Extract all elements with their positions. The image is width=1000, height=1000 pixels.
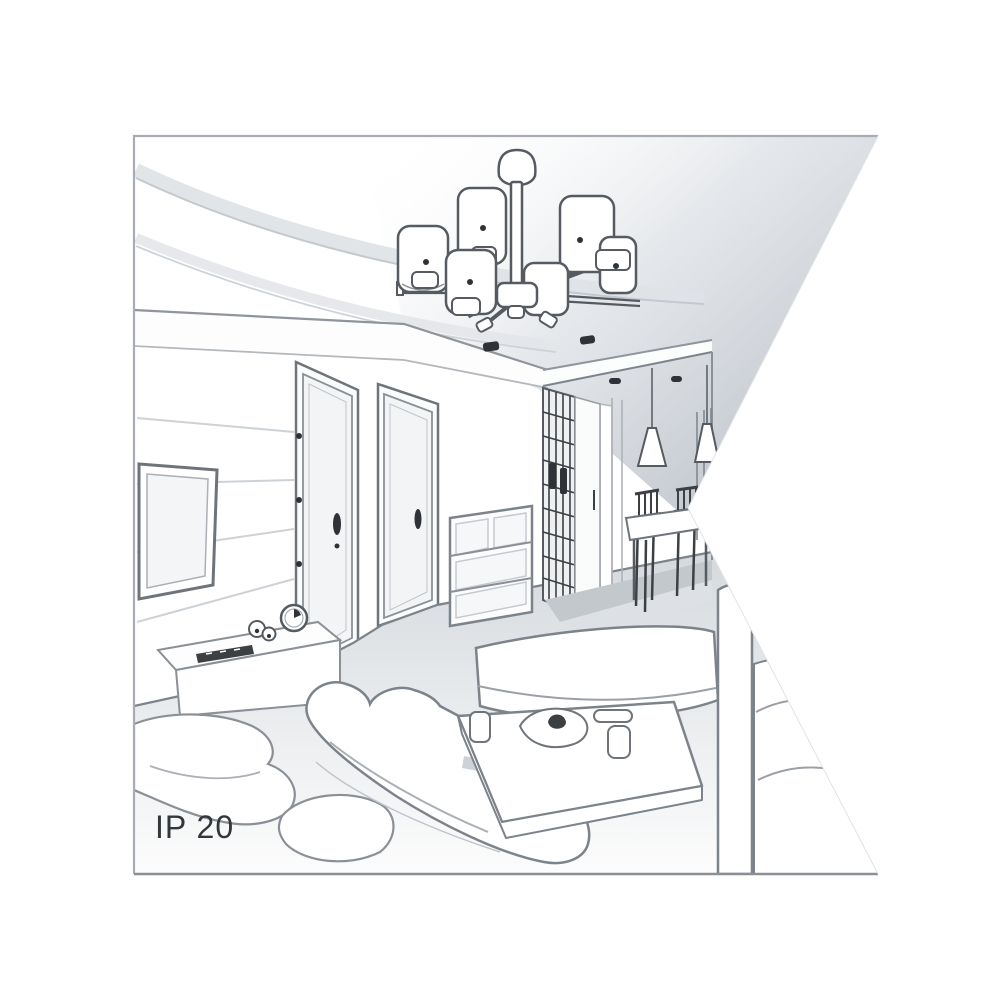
product-illustration: IP 20 bbox=[0, 0, 1000, 1000]
chandelier-canopy bbox=[499, 150, 536, 185]
hallway-door bbox=[575, 397, 600, 612]
door-handle bbox=[415, 509, 422, 529]
hinge-dot bbox=[296, 433, 302, 439]
door-right bbox=[378, 384, 438, 626]
chaise bbox=[476, 626, 718, 718]
tv bbox=[139, 464, 217, 599]
sofa-right-cushions bbox=[754, 657, 878, 874]
door-handle bbox=[333, 513, 341, 535]
cup bbox=[470, 712, 490, 742]
chest-of-drawers bbox=[450, 506, 532, 626]
ip-rating-label: IP 20 bbox=[155, 809, 234, 845]
chandelier-hub bbox=[497, 283, 537, 307]
wardrobe-grid bbox=[543, 388, 575, 612]
clock bbox=[281, 605, 307, 631]
chandelier-stem bbox=[511, 182, 522, 286]
room-sketch: IP 20 bbox=[0, 0, 1000, 1000]
hinge-dot bbox=[296, 561, 302, 567]
cup bbox=[608, 726, 630, 758]
hinge-dot bbox=[296, 497, 302, 503]
plate bbox=[594, 710, 632, 722]
sofa-right-arm bbox=[718, 584, 752, 874]
